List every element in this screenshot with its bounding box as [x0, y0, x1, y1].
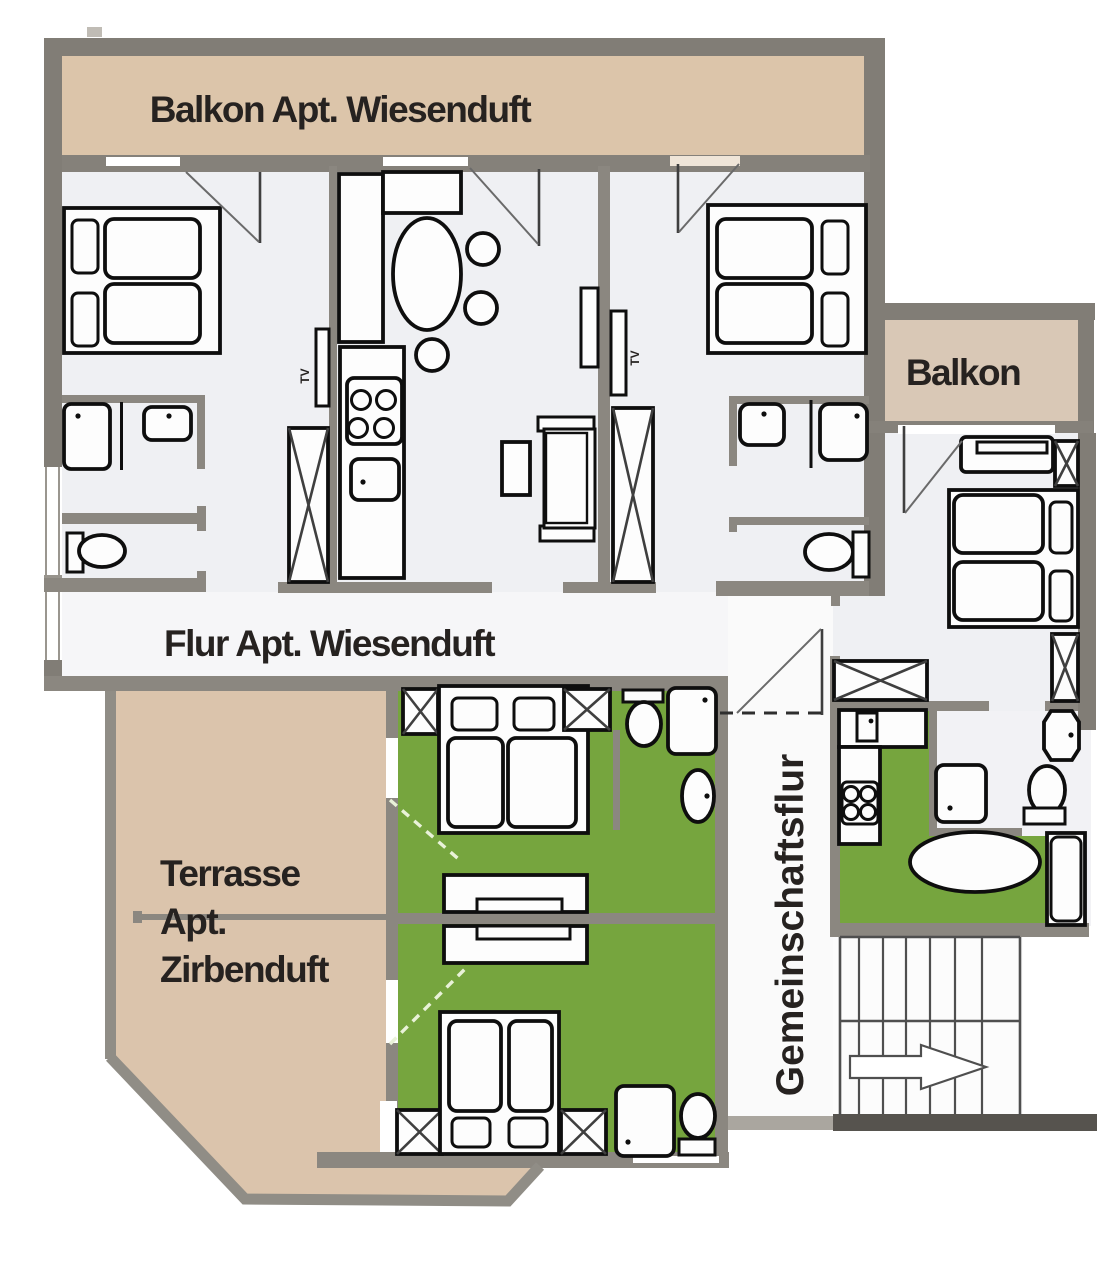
svg-text:Balkon Apt. Wiesenduft: Balkon Apt. Wiesenduft [150, 89, 532, 130]
svg-text:Apt.: Apt. [160, 901, 226, 942]
svg-text:TV: TV [298, 368, 312, 383]
svg-text:Terrasse: Terrasse [160, 853, 300, 894]
svg-text:Balkon: Balkon [906, 352, 1020, 393]
svg-text:Zirbenduft: Zirbenduft [160, 949, 329, 990]
svg-text:TV: TV [628, 350, 642, 365]
svg-text:Gemeinschaftsflur: Gemeinschaftsflur [769, 754, 812, 1096]
svg-text:Flur Apt. Wiesenduft: Flur Apt. Wiesenduft [164, 623, 495, 664]
